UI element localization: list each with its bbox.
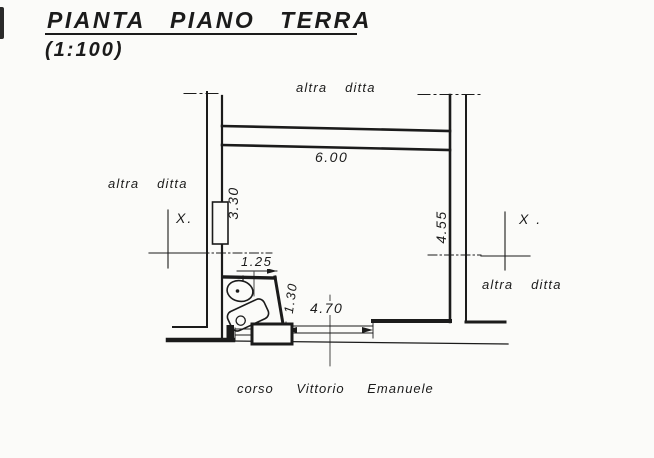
label-street: corso Vittorio Emanuele [237,381,434,396]
dim-shopfront-width: 4.70 [308,301,345,315]
bathroom-door [235,328,251,341]
label-neighbor-top: altra ditta [296,80,376,95]
pillar [252,324,292,344]
section-label-right: X . [519,211,542,227]
top-wall [222,126,450,150]
dim-left-wall-height: 3.30 [226,178,240,228]
right-wall [450,95,466,322]
door-jamb-block [227,325,235,341]
label-neighbor-right: altra ditta [482,277,562,292]
dimension-bath-width-line [237,268,277,296]
dim-right-wall-height: 4.55 [434,200,448,254]
dimension-arrow-right [362,327,373,333]
floor-plan-page: PIANTA PIANO TERRA (1:100) [0,0,654,458]
toilet-fixture [225,276,255,304]
dim-bath-width: 1.25 [239,255,274,269]
dim-room-width: 6.00 [313,150,350,164]
label-neighbor-left: altra ditta [108,176,188,191]
section-label-left: X. [176,210,193,226]
